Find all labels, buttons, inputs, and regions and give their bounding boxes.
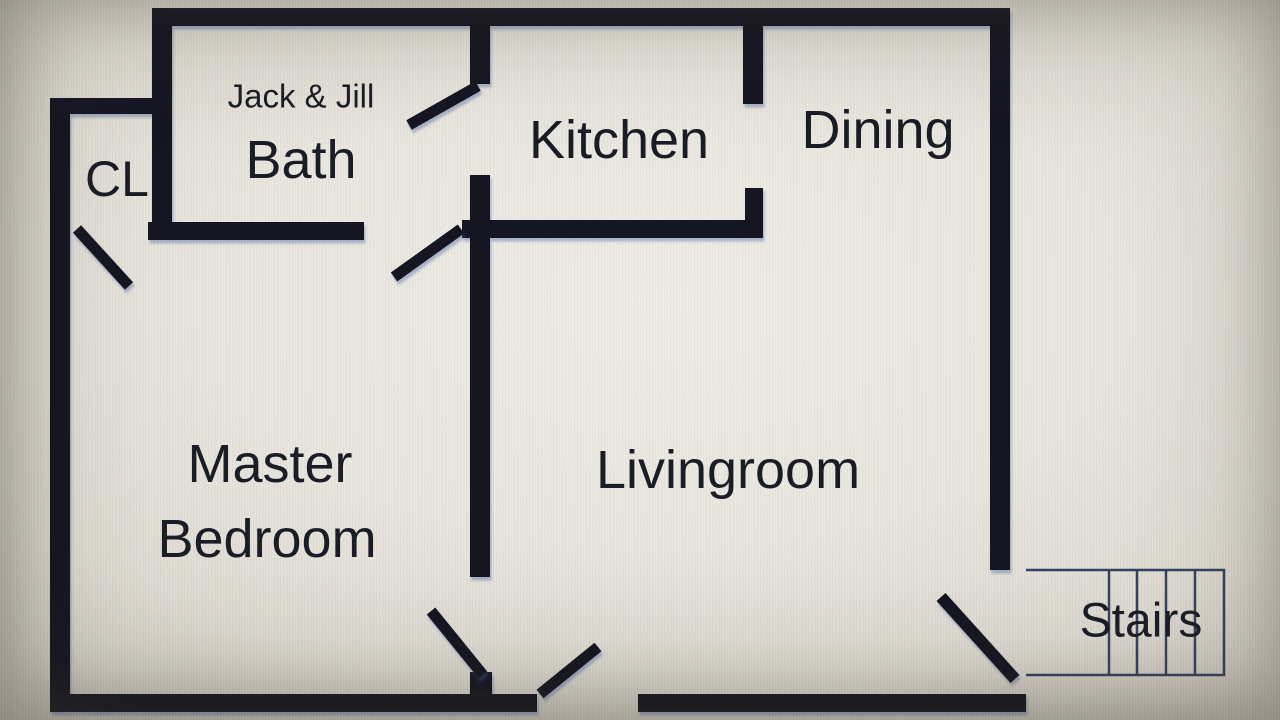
kitchen-label: Kitchen	[529, 110, 709, 170]
wall-bottom-right	[638, 694, 1026, 712]
stairs-door-swing	[941, 597, 1015, 679]
master-bedroom-label-line2: Bedroom	[157, 509, 376, 569]
wall-kitchen-stub-up	[745, 188, 763, 232]
living-room-label: Livingroom	[596, 440, 860, 500]
wall-kitchen-dining-divider	[743, 8, 763, 104]
wall-bath-bottom	[148, 222, 364, 240]
entry-door-swing	[540, 647, 598, 694]
room-labels: Jack & Jill Bath CL Kitchen Dining Maste…	[85, 78, 1202, 648]
closet-door-swing	[77, 229, 129, 286]
stairs-label: Stairs	[1080, 595, 1203, 648]
closet-label: CL	[85, 151, 149, 207]
wall-right	[990, 8, 1010, 570]
bath-kitchen-door-swing	[409, 86, 478, 125]
door-swings	[77, 86, 1015, 694]
dining-label: Dining	[801, 100, 954, 160]
bath-label-line1: Jack & Jill	[228, 78, 375, 115]
wall-top	[152, 8, 1010, 26]
floorplan-drawing: Jack & Jill Bath CL Kitchen Dining Maste…	[0, 0, 1280, 720]
floorplan-photo: Jack & Jill Bath CL Kitchen Dining Maste…	[0, 0, 1280, 720]
wall-left	[50, 98, 70, 712]
wall-kitchen-bottom	[462, 220, 763, 238]
master-bedroom-label-line1: Master	[187, 434, 352, 494]
bath-bedroom-door-swing	[394, 229, 461, 277]
wall-bottom-left	[50, 694, 537, 712]
bedroom-door-swing	[431, 611, 483, 675]
bath-label-line2: Bath	[245, 130, 356, 190]
wall-bath-left	[152, 8, 172, 240]
wall-bath-kitchen-upper	[470, 8, 490, 84]
